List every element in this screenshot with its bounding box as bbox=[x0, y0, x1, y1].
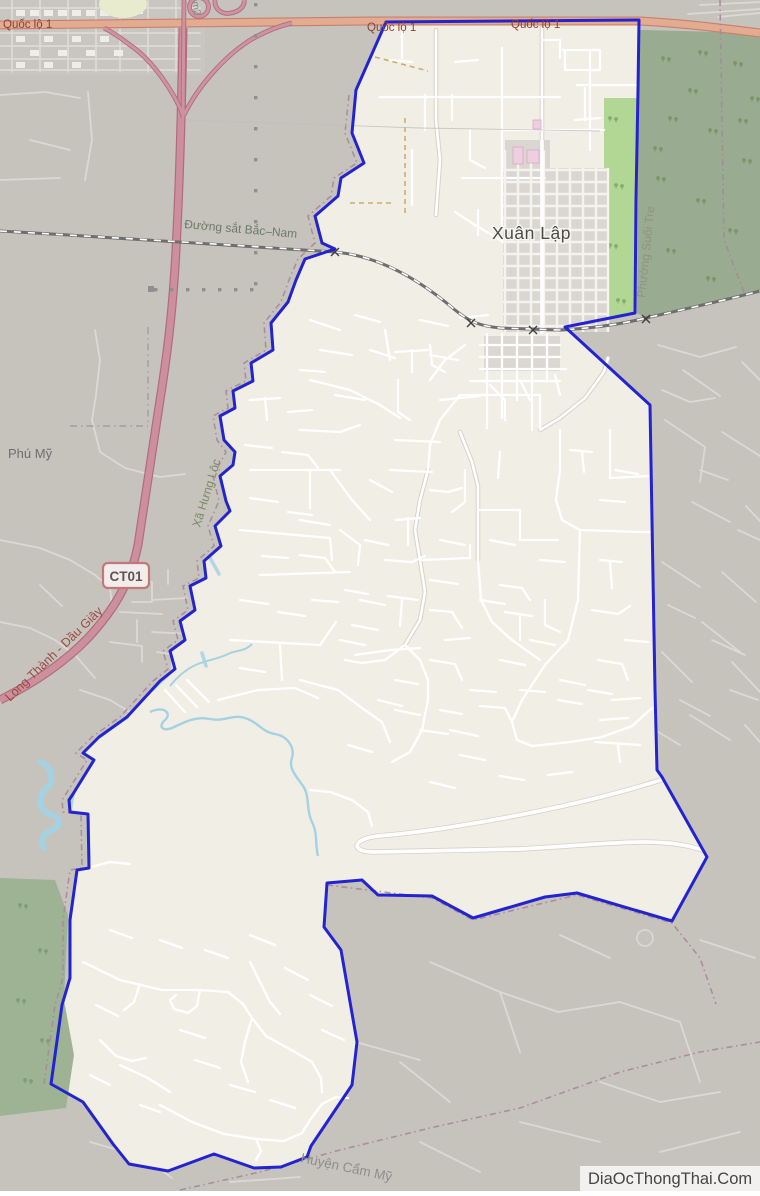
svg-text:Xuân Lập: Xuân Lập bbox=[492, 223, 571, 243]
svg-text:Quốc lộ 1: Quốc lộ 1 bbox=[3, 19, 52, 31]
svg-text:CT01: CT01 bbox=[109, 569, 143, 584]
svg-text:Quốc lộ 1: Quốc lộ 1 bbox=[367, 22, 416, 34]
svg-text:DiaOcThongThai.Com: DiaOcThongThai.Com bbox=[588, 1170, 752, 1188]
svg-text:Quốc lộ 1: Quốc lộ 1 bbox=[511, 19, 560, 31]
svg-text:Phú Mỹ: Phú Mỹ bbox=[8, 446, 53, 461]
